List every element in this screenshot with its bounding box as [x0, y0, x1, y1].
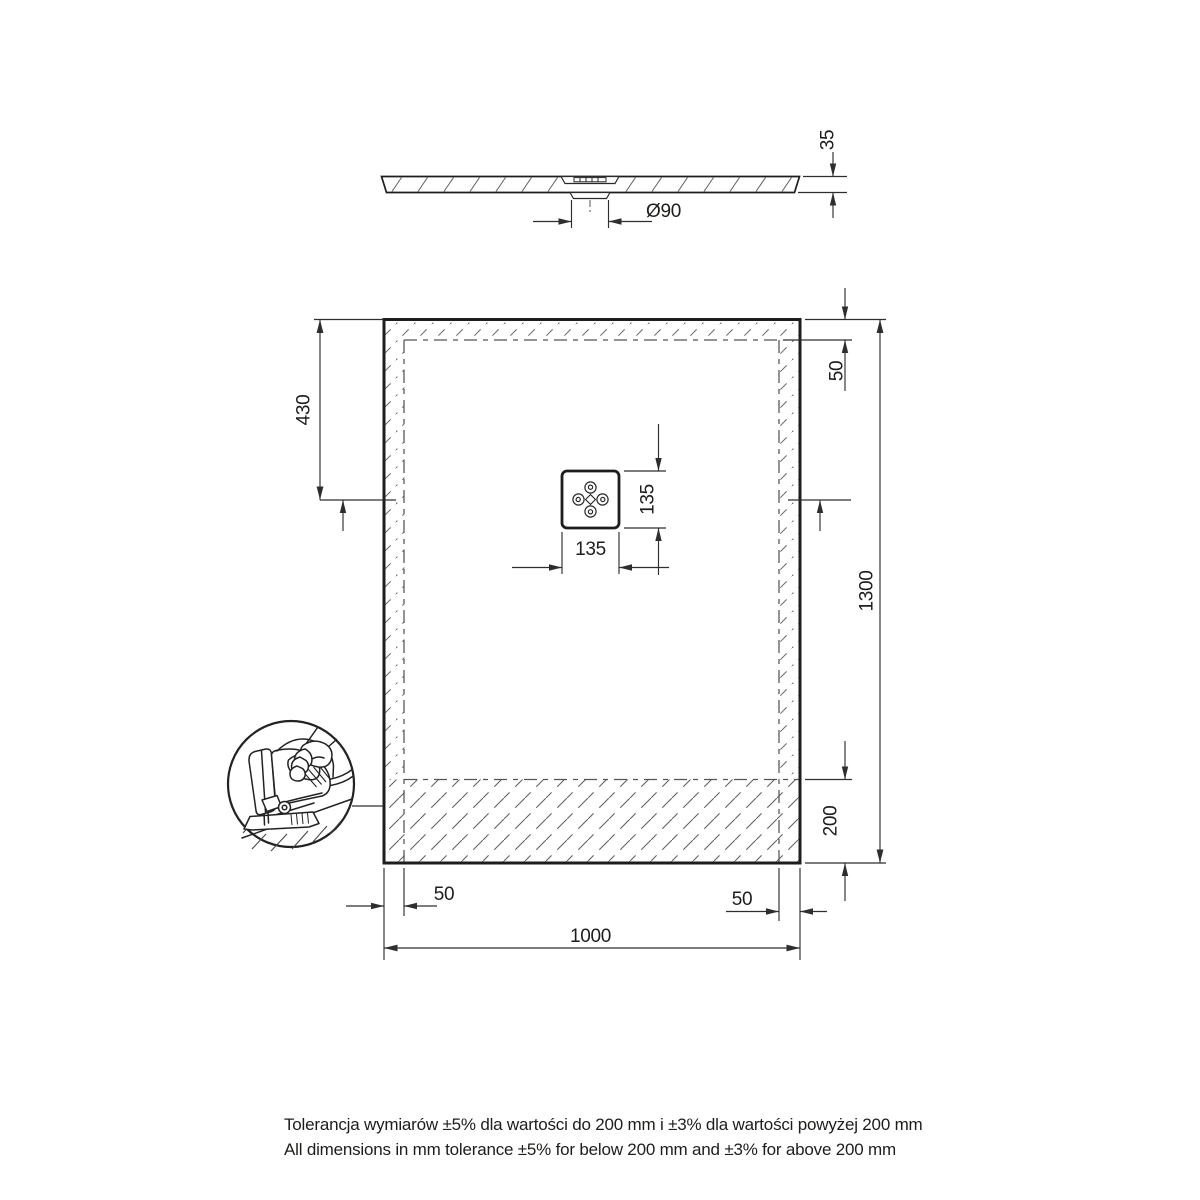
technical-drawing-page: Ø90 35: [0, 0, 1200, 1200]
dim-trim-bottom-zone: 200: [805, 741, 852, 901]
tolerance-note-pl: Tolerancja wymiarów ±5% dla wartości do …: [284, 1115, 923, 1134]
dim-drain-offset: 430: [294, 320, 396, 532]
trim-zone-bottom: [385, 780, 799, 863]
dim-overall-height-label: 1300: [857, 570, 878, 611]
dim-thickness-label: 35: [818, 130, 839, 151]
dim-thickness: 35: [798, 130, 847, 218]
dim-trim-left-label: 50: [434, 884, 455, 905]
tolerance-notes: Tolerancja wymiarów ±5% dla wartości do …: [284, 1115, 923, 1159]
dim-drain-width-label: 135: [575, 539, 606, 560]
dim-overall-width-label: 1000: [570, 926, 611, 947]
trim-zone-left: [385, 340, 405, 780]
dim-trim-top-label: 50: [827, 361, 848, 382]
shower-tray-drawing: Ø90 35: [0, 0, 1200, 1200]
tolerance-note-en: All dimensions in mm tolerance ±5% for b…: [284, 1140, 896, 1159]
jigsaw-detail: [228, 721, 384, 851]
dim-drain-height: 135: [624, 424, 666, 575]
trim-zone-top: [385, 321, 799, 341]
dim-drain-diameter-label: Ø90: [646, 201, 681, 222]
dim-trim-right: 50: [726, 889, 827, 915]
dim-overall-height: 1300: [805, 320, 886, 864]
dim-overall-width: 1000: [384, 926, 800, 951]
drain-cover: [562, 471, 619, 528]
dim-trim-right-label: 50: [732, 889, 753, 910]
dim-trim-bottom-label: 200: [821, 806, 842, 837]
dim-trim-left: 50: [346, 884, 454, 909]
dim-drain-width: 135: [512, 532, 669, 574]
plan-view: 430 50 1300: [294, 288, 886, 960]
dim-drain-diameter: Ø90: [533, 200, 681, 228]
trim-zone-right: [780, 340, 800, 780]
dim-drain-height-label: 135: [638, 484, 659, 515]
dim-drain-offset-label: 430: [294, 395, 315, 426]
section-view: Ø90 35: [382, 130, 848, 228]
drain-profile: [561, 177, 619, 214]
